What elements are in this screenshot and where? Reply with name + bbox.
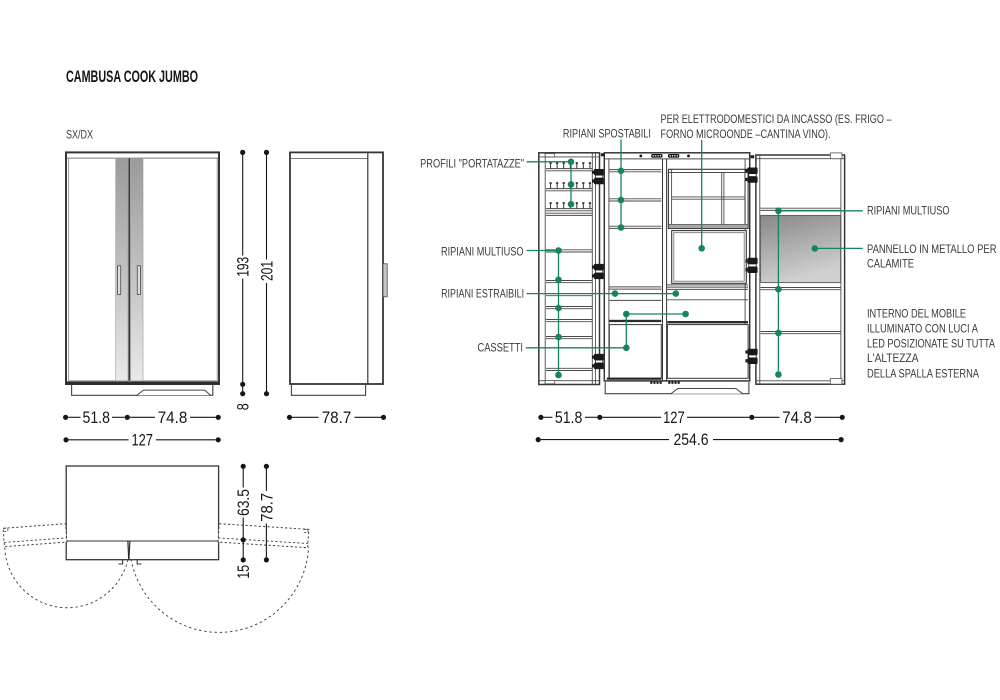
svg-text:78.7: 78.7 bbox=[258, 493, 276, 522]
svg-text:RIPIANI SPOSTABILI: RIPIANI SPOSTABILI bbox=[563, 126, 651, 140]
svg-text:78.7: 78.7 bbox=[322, 409, 352, 427]
svg-text:ILLUMINATO CON LUCI A: ILLUMINATO CON LUCI A bbox=[867, 321, 979, 335]
svg-text:DELLA SPALLA ESTERNA: DELLA SPALLA ESTERNA bbox=[867, 366, 980, 380]
svg-text:CAMBUSA COOK JUMBO: CAMBUSA COOK JUMBO bbox=[66, 68, 198, 86]
svg-text:254.6: 254.6 bbox=[674, 431, 709, 449]
svg-text:INTERNO DEL MOBILE: INTERNO DEL MOBILE bbox=[867, 307, 966, 321]
svg-text:PANNELLO IN METALLO PER: PANNELLO IN METALLO PER bbox=[867, 242, 997, 256]
svg-text:RIPIANI ESTRAIBILI: RIPIANI ESTRAIBILI bbox=[441, 286, 524, 300]
svg-text:193: 193 bbox=[235, 257, 253, 277]
svg-text:74.8: 74.8 bbox=[782, 409, 812, 427]
svg-text:127: 127 bbox=[663, 409, 685, 427]
svg-text:63.5: 63.5 bbox=[235, 489, 253, 516]
svg-text:RIPIANI MULTIUSO: RIPIANI MULTIUSO bbox=[867, 204, 950, 218]
svg-text:PER ELETTRODOMESTICI DA INCASS: PER ELETTRODOMESTICI DA INCASSO (ES. FRI… bbox=[661, 112, 892, 126]
svg-text:51.8: 51.8 bbox=[83, 409, 111, 427]
svg-text:FORNO MICROONDE –CANTINA VINO): FORNO MICROONDE –CANTINA VINO). bbox=[661, 127, 831, 141]
svg-text:PROFILI "PORTATAZZE": PROFILI "PORTATAZZE" bbox=[420, 156, 524, 170]
svg-text:15: 15 bbox=[235, 565, 253, 579]
svg-text:74.8: 74.8 bbox=[158, 409, 188, 427]
svg-text:CASSETTI: CASSETTI bbox=[478, 340, 524, 354]
svg-text:RIPIANI MULTIUSO: RIPIANI MULTIUSO bbox=[441, 245, 524, 259]
svg-text:201: 201 bbox=[259, 261, 277, 281]
svg-text:CALAMITE: CALAMITE bbox=[867, 257, 914, 271]
svg-text:L'ALTEZZA: L'ALTEZZA bbox=[867, 351, 919, 365]
svg-text:LED POSIZIONATE SU TUTTA: LED POSIZIONATE SU TUTTA bbox=[867, 336, 996, 350]
svg-text:51.8: 51.8 bbox=[555, 409, 583, 427]
svg-text:127: 127 bbox=[131, 431, 153, 449]
svg-text:8: 8 bbox=[235, 403, 253, 410]
svg-text:SX/DX: SX/DX bbox=[66, 128, 93, 142]
